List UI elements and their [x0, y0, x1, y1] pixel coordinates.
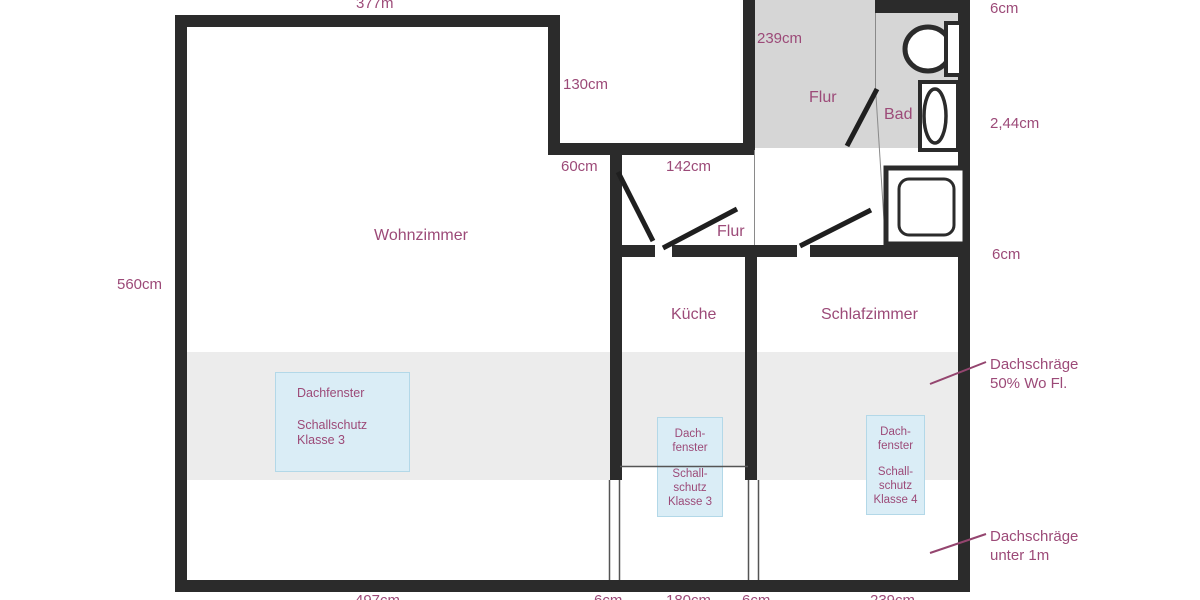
skylight-kueche-line2: fenster: [658, 441, 722, 455]
wall-rooms-top-segment-3: [810, 245, 958, 257]
skylight-schlafzimmer-line4: schutz: [867, 479, 924, 493]
skylight-wohnzimmer-line3: Klasse 3: [297, 433, 409, 448]
skylight-schlafzimmer-line3: Schall-: [867, 465, 924, 479]
dim-label-left-height: 560cm: [117, 276, 162, 293]
skylight-kueche-line3: Schall-: [658, 467, 722, 481]
wall-outer-bottom: [175, 580, 970, 592]
floor-plan: Dachfenster Schallschutz Klasse 3 Dach- …: [0, 0, 1200, 600]
dim-label-bottom-4: 6cm: [742, 592, 770, 600]
wall-outer-left: [175, 15, 187, 592]
annotation-dachschraege-50-line1: Dachschräge: [990, 355, 1078, 374]
dim-label-wall-top-right: 6cm: [990, 0, 1018, 17]
skylight-label-kueche: Dach- fenster Schall- schutz Klasse 3: [657, 417, 723, 517]
room-label-kueche: Küche: [671, 306, 716, 324]
wall-outer-top: [175, 15, 560, 27]
flur-bad-shaded-area: [755, 0, 958, 148]
wall-kueche-schlafzimmer: [745, 245, 757, 480]
annotation-dachschraege-1m: Dachschräge unter 1m: [990, 527, 1078, 565]
annotation-dachschraege-1m-line1: Dachschräge: [990, 527, 1078, 546]
dim-label-bottom-3: 180cm: [666, 592, 711, 600]
wall-step-horizontal: [548, 143, 755, 155]
dim-label-wall-right-mid: 6cm: [992, 246, 1020, 263]
skylight-label-schlafzimmer: Dach- fenster Schall- schutz Klasse 4: [866, 415, 925, 515]
room-label-bad: Bad: [884, 106, 912, 124]
door-swing-wohnzimmer: [618, 172, 653, 241]
skylight-schlafzimmer-line1: Dach-: [867, 425, 924, 439]
dim-label-bad-height: 2,44cm: [990, 115, 1039, 132]
wall-outer-right: [958, 0, 970, 592]
dim-label-step-width: 60cm: [561, 158, 598, 175]
wall-step-vertical: [548, 15, 560, 155]
skylight-kueche-line5: Klasse 3: [658, 495, 722, 509]
skylight-wohnzimmer-line2: Schallschutz: [297, 418, 409, 433]
dim-label-top-width: 377m: [356, 0, 394, 12]
annotation-dachschraege-50-line2: 50% Wo Fl.: [990, 374, 1078, 393]
skylight-kueche-line4: schutz: [658, 481, 722, 495]
dim-label-bottom-5: 239cm: [870, 592, 915, 600]
room-label-flur-oben: Flur: [809, 89, 837, 107]
dim-label-corridor-width: 142cm: [666, 158, 711, 175]
wall-rooms-top-segment-1: [610, 245, 655, 257]
wall-rooms-top-segment-2: [672, 245, 797, 257]
dim-label-bottom-2: 6cm: [594, 592, 622, 600]
skylight-schlafzimmer-line2: fenster: [867, 439, 924, 453]
dim-label-bottom-1: 497cm: [355, 592, 400, 600]
room-label-flur-unten: Flur: [717, 223, 745, 241]
annotation-dachschraege-1m-line2: unter 1m: [990, 546, 1078, 565]
wall-bad-top: [875, 0, 970, 13]
wall-corridor-left: [610, 143, 622, 480]
skylight-schlafzimmer-line5: Klasse 4: [867, 493, 924, 507]
shower-icon: [886, 168, 965, 244]
dim-label-flur-depth: 239cm: [757, 30, 802, 47]
door-swing-schlafzimmer: [800, 210, 871, 246]
annotation-dachschraege-50: Dachschräge 50% Wo Fl.: [990, 355, 1078, 393]
skylight-wohnzimmer-line1: Dachfenster: [297, 386, 409, 401]
wall-entry-left: [743, 0, 755, 150]
skylight-kueche-line1: Dach-: [658, 427, 722, 441]
skylight-label-wohnzimmer: Dachfenster Schallschutz Klasse 3: [275, 372, 410, 472]
room-label-wohnzimmer: Wohnzimmer: [374, 227, 468, 245]
room-label-schlafzimmer: Schlafzimmer: [821, 306, 918, 324]
dim-label-step-height: 130cm: [563, 76, 608, 93]
